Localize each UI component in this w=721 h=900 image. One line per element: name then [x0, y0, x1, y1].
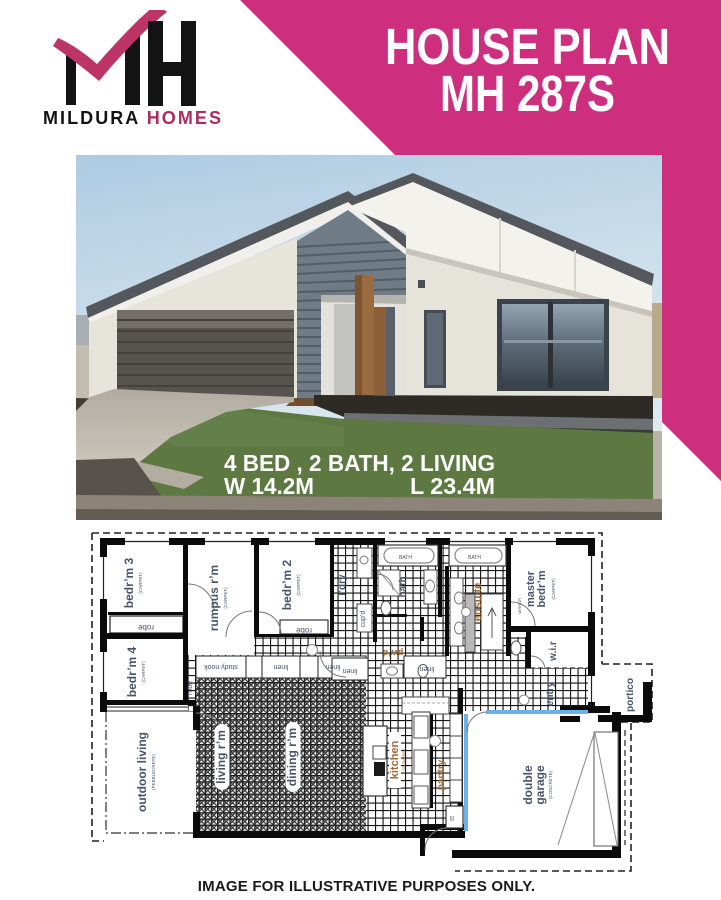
- svg-text:pantry: pantry: [436, 759, 447, 790]
- svg-text:(CARPET): (CARPET): [138, 572, 143, 594]
- svg-text:bedr’m: bedr’m: [536, 570, 548, 607]
- svg-text:cup’d: cup’d: [360, 611, 367, 628]
- svg-text:L 23.4M: L 23.4M: [410, 473, 495, 499]
- svg-text:(PEBBLECRETE): (PEBBLECRETE): [151, 754, 156, 790]
- svg-text:MIRROR: MIRROR: [517, 598, 522, 614]
- svg-text:w.i.r: w.i.r: [548, 641, 559, 662]
- svg-text:BATH: BATH: [399, 555, 412, 561]
- svg-text:l’dry: l’dry: [337, 574, 348, 596]
- svg-text:(CARPET): (CARPET): [141, 661, 146, 683]
- svg-text:bath: bath: [398, 576, 409, 597]
- svg-text:900 SMOKED: 900 SMOKED: [402, 749, 406, 771]
- svg-text:linen: linen: [343, 667, 358, 674]
- svg-text:linen: linen: [274, 663, 289, 670]
- svg-text:robe: robe: [137, 623, 154, 632]
- svg-text:(CARPET): (CARPET): [296, 574, 301, 596]
- svg-text:outdoor living: outdoor living: [135, 732, 149, 812]
- svg-text:robe: robe: [187, 681, 194, 695]
- svg-text:linen: linen: [420, 665, 435, 672]
- svg-text:study nook: study nook: [204, 663, 238, 670]
- svg-text:BATH: BATH: [468, 555, 481, 561]
- svg-text:entry: entry: [545, 681, 556, 706]
- svg-text:pw’d: pw’d: [383, 648, 404, 658]
- svg-text:robe: robe: [295, 626, 312, 635]
- svg-text:dining r’m: dining r’m: [285, 728, 299, 786]
- svg-text:MILDURA HOMES: MILDURA HOMES: [43, 108, 221, 128]
- svg-text:kitchen: kitchen: [389, 740, 401, 779]
- svg-text:bedr’m 4: bedr’m 4: [125, 646, 139, 697]
- svg-text:MH 287S: MH 287S: [440, 65, 615, 122]
- svg-text:linen: linen: [326, 663, 341, 670]
- svg-text:(CARPET): (CARPET): [223, 587, 228, 609]
- svg-text:(CONCRETE): (CONCRETE): [548, 770, 553, 799]
- svg-text:bedr’m 3: bedr’m 3: [122, 557, 136, 608]
- svg-text:ensuite: ensuite: [472, 583, 484, 622]
- svg-text:portico: portico: [625, 678, 636, 712]
- svg-text:garage: garage: [533, 765, 547, 805]
- svg-text:living r’m: living r’m: [214, 730, 228, 784]
- svg-text:W 14.2M: W 14.2M: [224, 473, 314, 499]
- svg-text:bedr’m 2: bedr’m 2: [280, 559, 294, 610]
- svg-text:(CARPET): (CARPET): [551, 578, 556, 600]
- svg-text:rumpus r’m: rumpus r’m: [207, 565, 221, 631]
- svg-text:|||: |||: [450, 816, 454, 822]
